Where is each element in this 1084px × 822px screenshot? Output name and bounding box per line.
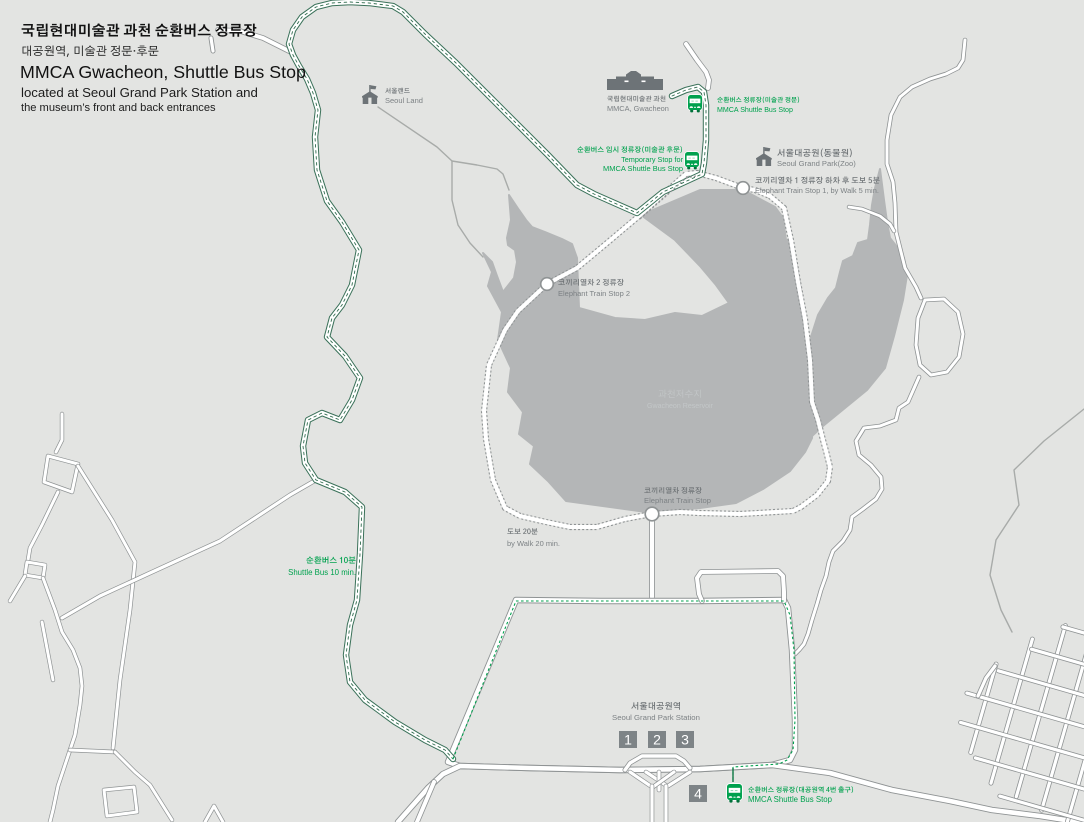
svg-text:Temporary Stop for: Temporary Stop for [621, 155, 683, 164]
svg-text:Seoul Land: Seoul Land [385, 96, 423, 105]
svg-text:Shuttle Bus 10 min.: Shuttle Bus 10 min. [288, 568, 356, 577]
svg-text:Elephant Train Stop 1, by Walk: Elephant Train Stop 1, by Walk 5 min. [755, 186, 879, 195]
svg-text:2: 2 [653, 732, 661, 748]
svg-text:Seoul Grand Park(Zoo): Seoul Grand Park(Zoo) [777, 159, 856, 168]
svg-text:by Walk 20 min.: by Walk 20 min. [507, 539, 560, 548]
svg-text:MMCA Shuttle Bus Stop: MMCA Shuttle Bus Stop [717, 106, 793, 114]
svg-text:Elephant Train Stop 2: Elephant Train Stop 2 [558, 289, 630, 298]
svg-text:MMCA Gwacheon, Shuttle Bus Sto: MMCA Gwacheon, Shuttle Bus Stop [20, 62, 306, 82]
svg-text:Gwacheon Reservoir: Gwacheon Reservoir [647, 403, 714, 410]
svg-text:Elephant Train Stop: Elephant Train Stop [644, 496, 711, 505]
svg-text:4: 4 [694, 786, 702, 802]
svg-text:located at Seoul Grand Park St: located at Seoul Grand Park Station and [21, 85, 258, 100]
svg-text:1: 1 [624, 732, 632, 748]
svg-text:MMCA Shuttle Bus Stop: MMCA Shuttle Bus Stop [603, 164, 683, 173]
svg-text:3: 3 [681, 732, 689, 748]
svg-text:MMCA, Gwacheon: MMCA, Gwacheon [607, 104, 669, 113]
svg-text:MMCA Shuttle Bus Stop: MMCA Shuttle Bus Stop [748, 795, 833, 804]
svg-text:Seoul Grand Park Station: Seoul Grand Park Station [612, 713, 700, 722]
svg-text:the museum’s front and back en: the museum’s front and back entrances [21, 102, 216, 114]
